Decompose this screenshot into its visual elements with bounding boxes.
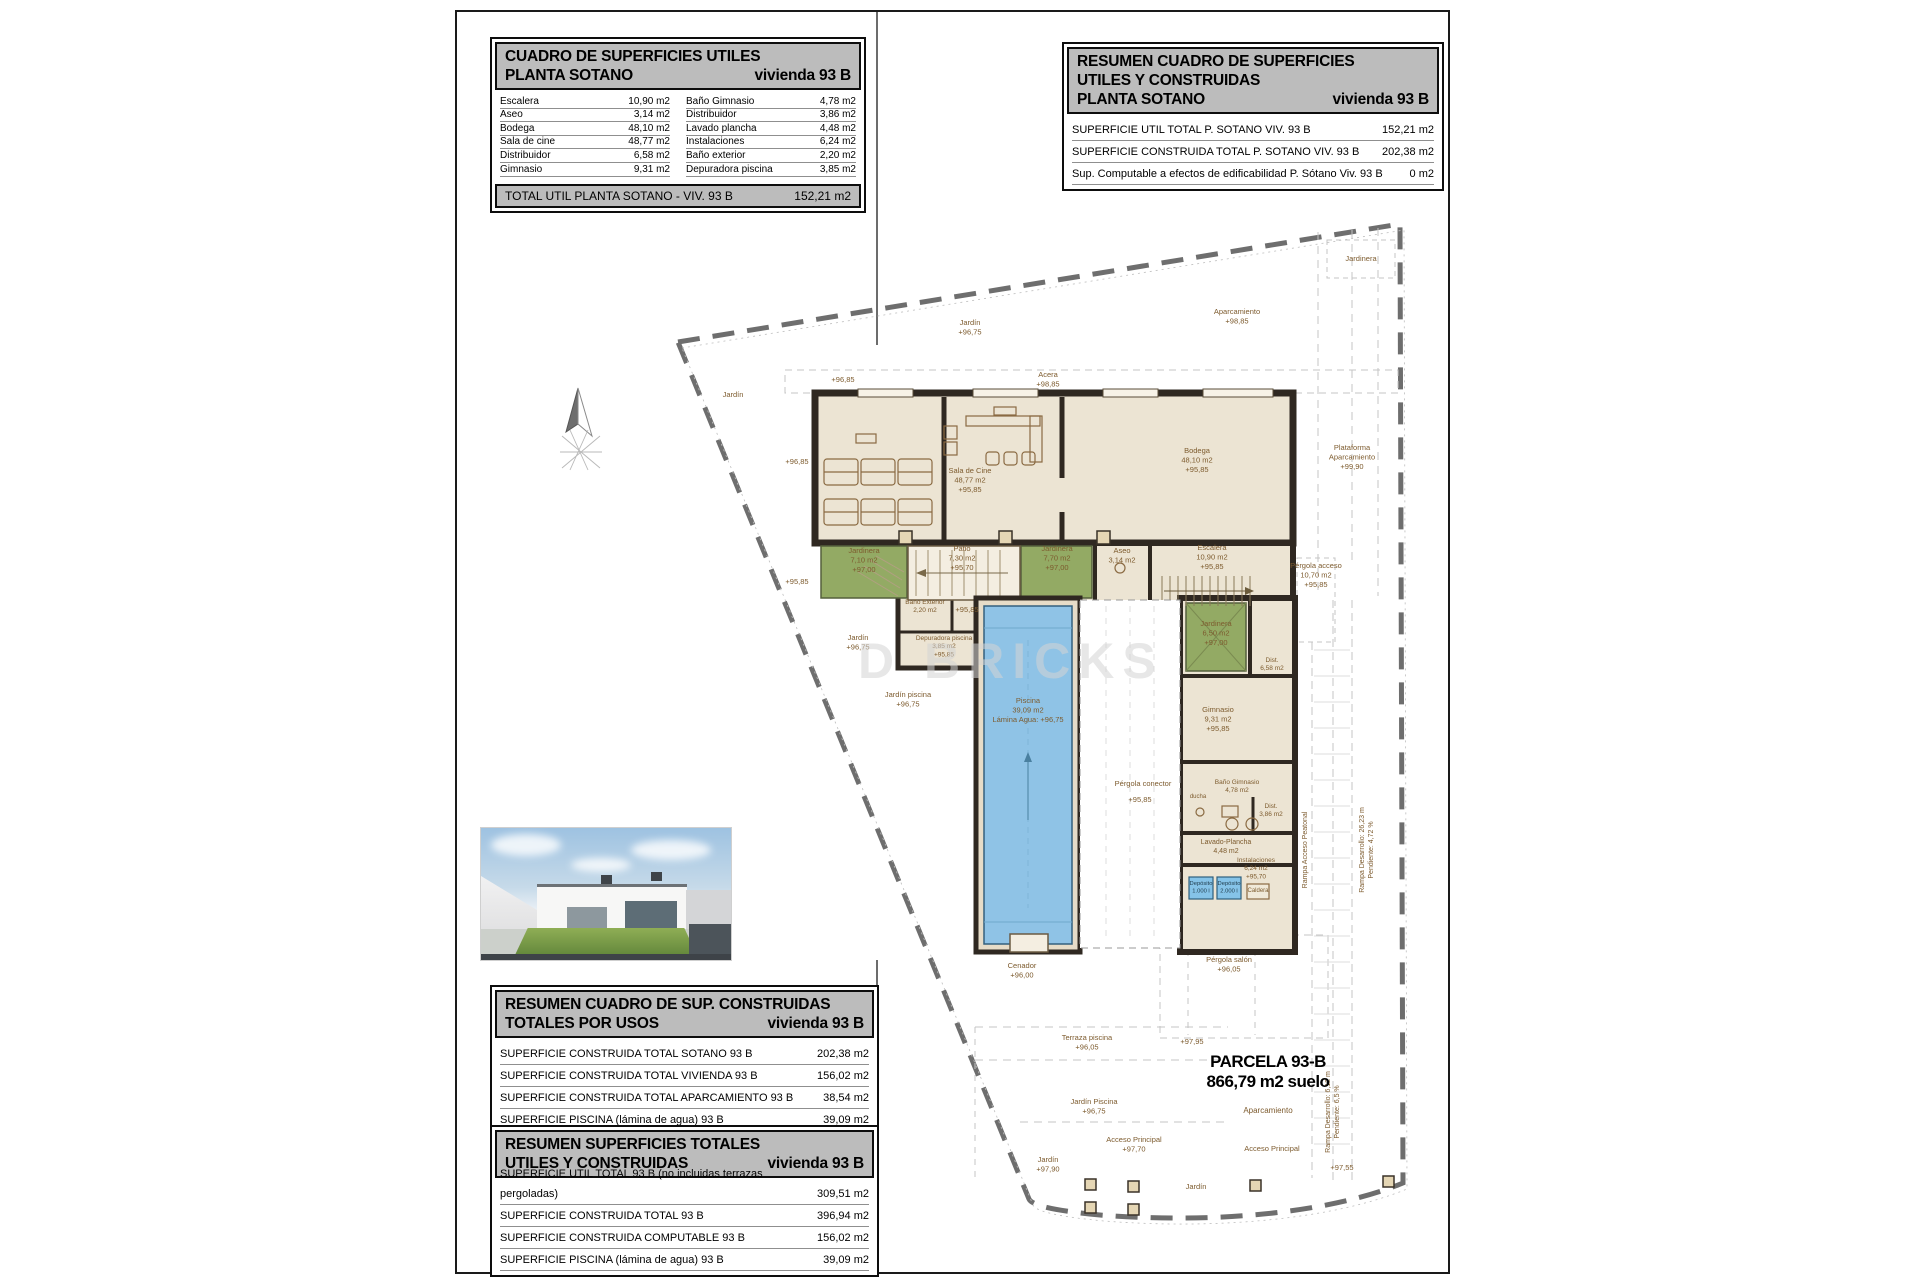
row-value: 152,21 m2 [1376, 120, 1434, 140]
plan-label-line: +95,85 [1200, 562, 1223, 571]
plan-label-line: +96,75 [896, 699, 919, 708]
plan-label-line: +96,85 [831, 375, 854, 384]
plan-label: Rampa Acceso Peatonal [1302, 811, 1309, 888]
plan-label: Acera+98,85 [1036, 370, 1059, 388]
row-value: 309,51 m2 [811, 1184, 869, 1204]
plan-label-line: +96,05 [1075, 1042, 1098, 1051]
table-row: SUPERFICIE PISCINA (lámina de agua) 93 B… [500, 1249, 869, 1271]
watermark-text: D BRICKS [858, 632, 1164, 690]
row-label: Baño Gimnasio [686, 96, 754, 108]
plan-label-line: +95,70 [1246, 873, 1266, 880]
table-rows: SUPERFICIE CONSTRUIDA TOTAL SOTANO 93 B2… [492, 1041, 877, 1135]
table-total-row: TOTAL UTIL PLANTA SOTANO - VIV. 93 B 152… [495, 184, 861, 208]
plan-label-line: Jardinera [1345, 254, 1377, 263]
table-row: Distribuidor3,86 m2 [686, 109, 856, 123]
table-title: RESUMEN CUADRO DE SUP. CONSTRUIDAS [505, 995, 864, 1014]
plan-label: Caldera [1247, 888, 1269, 894]
table-rows: SUPERFICIE UTIL TOTAL P. SOTANO VIV. 93 … [1064, 117, 1442, 189]
plan-label-line: Jardín [723, 390, 744, 399]
rows-left-column: Escalera10,90 m2Aseo3,14 m2Bodega48,10 m… [500, 95, 670, 177]
plan-label-line: Aseo [1113, 546, 1130, 555]
row-value: 396,94 m2 [811, 1206, 869, 1226]
plan-label-line: Instalaciones [1237, 857, 1276, 864]
plan-label-line: Aparcamiento [1214, 307, 1260, 316]
plan-label-line: +98,85 [1225, 316, 1248, 325]
parcela-area: 866,79 m2 suelo [1188, 1072, 1348, 1092]
parcela-name: PARCELA 93-B [1188, 1052, 1348, 1072]
plan-label-line: 4,78 m2 [1225, 787, 1249, 794]
plan-label-line: +95,85 [1185, 465, 1208, 474]
plan-label-line: 10,90 m2 [1196, 552, 1227, 561]
plan-label-line: Gimnasio [1202, 705, 1234, 714]
row-label: Bodega [500, 123, 534, 135]
photo-chimney [651, 872, 662, 881]
plan-label: Aparcamiento+98,85 [1214, 307, 1260, 325]
row-value: 3,14 m2 [628, 109, 670, 121]
row-label: Gimnasio [500, 164, 542, 176]
plan-label-line: 48,10 m2 [1181, 455, 1212, 464]
row-label: SUPERFICIE CONSTRUIDA TOTAL VIVIENDA 93 … [500, 1066, 758, 1086]
row-label: SUPERFICIE CONSTRUIDA TOTAL SOTANO 93 B [500, 1044, 752, 1064]
plan-label-line: +97,00 [852, 565, 875, 574]
table-row: Bodega48,10 m2 [500, 122, 670, 136]
row-value: 6,58 m2 [628, 150, 670, 162]
plan-label-line: Patio [953, 544, 970, 553]
plan-label-line: 4,48 m2 [1213, 848, 1238, 855]
plan-label-line: Pendiente: 4,72 % [1368, 821, 1375, 878]
plan-label-line: 2.000 l [1220, 888, 1237, 894]
plan-label-line: Pérgola conector [1115, 779, 1172, 788]
row-label: Instalaciones [686, 136, 744, 148]
plan-label-line: 10,70 m2 [1300, 570, 1331, 579]
plan-label-line: Cenador [1008, 961, 1037, 970]
table-row: Escalera10,90 m2 [500, 95, 670, 109]
rows-right-column: Baño Gimnasio4,78 m2Distribuidor3,86 m2L… [686, 95, 856, 177]
row-value: 38,54 m2 [817, 1088, 869, 1108]
row-value: 4,78 m2 [814, 96, 856, 108]
table-row: Depuradora piscina3,85 m2 [686, 163, 856, 177]
plan-label: Depósito2.000 l [1218, 881, 1241, 894]
plan-label: +96,85 [785, 457, 808, 466]
plan-label-line: +96,05 [1217, 964, 1240, 973]
plan-label-line: Acera [1038, 370, 1058, 379]
plan-label-line: Plataforma [1334, 443, 1371, 452]
row-value: 2,20 m2 [814, 150, 856, 162]
table-resumen-sotano: RESUMEN CUADRO DE SUPERFICIES UTILES Y C… [1062, 42, 1444, 191]
plan-label-line: Sala de Cine [949, 466, 992, 475]
plan-label: Pérgola salón+96,05 [1206, 955, 1252, 973]
row-value: 9,31 m2 [628, 164, 670, 176]
parcela-label-block: PARCELA 93-B 866,79 m2 suelo Aparcamient… [1188, 1052, 1348, 1115]
table-vivienda: vivienda 93 B [1333, 90, 1429, 109]
plan-label-line: +97,90 [1036, 1164, 1059, 1173]
north-arrow-icon [560, 388, 602, 470]
row-label: Distribuidor [686, 109, 737, 121]
table-row: SUPERFICIE CONSTRUIDA TOTAL SOTANO 93 B2… [500, 1043, 869, 1065]
plan-label-line: Jardín [1186, 1182, 1207, 1191]
table-title2: UTILES Y CONSTRUIDAS [1077, 71, 1429, 90]
plan-label-line: Jardinera [1041, 544, 1073, 553]
row-label: Baño exterior [686, 150, 745, 162]
plan-label-line: 7,70 m2 [1043, 553, 1070, 562]
table-row: SUPERFICIE CONSTRUIDA TOTAL 93 B396,94 m… [500, 1205, 869, 1227]
plan-label: ducha [1190, 794, 1207, 800]
plan-label-line: Rampa Acceso Peatonal [1302, 811, 1309, 888]
plan-label-line: Baño Gimnasio [1215, 779, 1260, 786]
plan-label-line: +96,75 [958, 327, 981, 336]
plan-label-line: 1.000 l [1192, 888, 1209, 894]
row-label: Sup. Computable a efectos de edificabili… [1072, 164, 1383, 184]
table-row: Baño exterior2,20 m2 [686, 149, 856, 163]
plan-label-line: Jardín piscina [885, 690, 932, 699]
row-value: 156,02 m2 [811, 1066, 869, 1086]
row-value: 10,90 m2 [622, 96, 670, 108]
table-row: SUPERFICIE CONSTRUIDA TOTAL APARCAMIENTO… [500, 1087, 869, 1109]
plan-label: Bodega48,10 m2+95,85 [1181, 446, 1212, 474]
row-value: 6,24 m2 [814, 136, 856, 148]
photo-bottom-band [481, 954, 731, 960]
plan-label-line: Pérgola acceso [1290, 561, 1342, 570]
plan-label: Cenador+96,00 [1008, 961, 1037, 979]
plan-label: Jardín+96,75 [958, 318, 981, 336]
plan-label-line: 6,50 m2 [1202, 628, 1229, 637]
table-construidas-por-usos: RESUMEN CUADRO DE SUP. CONSTRUIDAS TOTAL… [490, 985, 879, 1137]
plan-label: Acceso Principal [1244, 1144, 1300, 1153]
row-value: 48,10 m2 [622, 123, 670, 135]
plan-label-line: Jardinera [848, 546, 880, 555]
plan-label: Pérgola conector [1115, 779, 1172, 788]
table-row: Sup. Computable a efectos de edificabili… [1072, 163, 1434, 185]
plan-label-line: 6,24 m2 [1244, 865, 1268, 872]
plan-label-line: Piscina [1016, 696, 1041, 705]
photo-lawn [515, 928, 697, 955]
table-title: RESUMEN CUADRO DE SUPERFICIES [1077, 52, 1429, 71]
plan-label-line: +96,75 [1082, 1106, 1105, 1115]
row-label: SUPERFICIE CONSTRUIDA TOTAL 93 B [500, 1206, 704, 1226]
plan-label-line: Jardín [1038, 1155, 1059, 1164]
row-label: Sala de cine [500, 136, 555, 148]
photo-chimney [601, 875, 612, 884]
table-row: Distribuidor6,58 m2 [500, 149, 670, 163]
row-label: SUPERFICIE CONSTRUIDA TOTAL P. SOTANO VI… [1072, 142, 1359, 162]
table-header: RESUMEN CUADRO DE SUP. CONSTRUIDAS TOTAL… [495, 990, 874, 1038]
table-row: SUPERFICIE UTIL TOTAL 93 B (no incluidas… [500, 1183, 869, 1205]
total-value: 152,21 m2 [794, 189, 851, 203]
plan-label-line: Aparcamiento [1329, 452, 1375, 461]
plan-label-line: Jardín [960, 318, 981, 327]
plan-label-line: +96,00 [1010, 970, 1033, 979]
row-label: SUPERFICIE CONSTRUIDA COMPUTABLE 93 B [500, 1228, 745, 1248]
plan-label: +97,55 [1330, 1163, 1353, 1172]
plan-label-line: +95,85 [785, 577, 808, 586]
plan-label: Jardinera [1345, 254, 1377, 263]
table-row: Sala de cine48,77 m2 [500, 136, 670, 150]
plan-label-line: Depósito [1218, 881, 1241, 887]
plan-label-line: +97,70 [1122, 1144, 1145, 1153]
row-value: 4,48 m2 [814, 123, 856, 135]
plan-label-line: +98,85 [1036, 379, 1059, 388]
plan-label-line: Terraza piscina [1062, 1033, 1113, 1042]
table-row: Gimnasio9,31 m2 [500, 163, 670, 177]
row-label: SUPERFICIE CONSTRUIDA TOTAL APARCAMIENTO… [500, 1088, 793, 1108]
row-value: 39,09 m2 [817, 1250, 869, 1270]
plan-label-line: Escalera [1197, 543, 1227, 552]
row-label: Depuradora piscina [686, 164, 773, 176]
plan-label-line: +95,85 [1304, 580, 1327, 589]
plan-label-line: Lámina Agua: +96,75 [992, 715, 1063, 724]
table-row: SUPERFICIE CONSTRUIDA TOTAL VIVIENDA 93 … [500, 1065, 869, 1087]
plan-label: +95,85 [955, 605, 978, 614]
table-row: SUPERFICIE UTIL TOTAL P. SOTANO VIV. 93 … [1072, 119, 1434, 141]
row-label: Lavado plancha [686, 123, 757, 135]
row-value: 3,86 m2 [814, 109, 856, 121]
plan-label-line: Acceso Principal [1244, 1144, 1300, 1153]
row-value: 156,02 m2 [811, 1228, 869, 1248]
row-label: SUPERFICIE PISCINA (lámina de agua) 93 B [500, 1250, 724, 1270]
plan-label-line: +95,85 [958, 485, 981, 494]
plan-label-line: +97,55 [1330, 1163, 1353, 1172]
plan-label-line: 6,58 m2 [1260, 665, 1284, 672]
house-render-photo [480, 827, 732, 961]
plan-label-line: +95,85 [955, 605, 978, 614]
plan-label: Jardín piscina+96,75 [885, 690, 932, 708]
row-value: 48,77 m2 [622, 136, 670, 148]
plan-label-line: Bodega [1184, 446, 1211, 455]
row-value: 202,38 m2 [811, 1044, 869, 1064]
table-row: Instalaciones6,24 m2 [686, 136, 856, 150]
table-superficies-totales: RESUMEN SUPERFICIES TOTALES UTILES Y CON… [490, 1125, 879, 1277]
table-title: RESUMEN SUPERFICIES TOTALES [505, 1135, 864, 1154]
table-vivienda: vivienda 93 B [768, 1014, 864, 1033]
plan-label-line: +95,70 [950, 563, 973, 572]
table-vivienda: vivienda 93 B [755, 66, 851, 85]
plan-label: PlataformaAparcamiento+99,90 [1329, 443, 1375, 471]
plan-label-line: Dist. [1266, 657, 1279, 664]
plan-label-line: 48,77 m2 [954, 475, 985, 484]
plan-label-line: +97,00 [1204, 638, 1227, 647]
table-row: SUPERFICIE CONSTRUIDA COMPUTABLE 93 B156… [500, 1227, 869, 1249]
cenador-structure [1010, 934, 1048, 952]
plan-label-line: +95,85 [1128, 795, 1151, 804]
plan-label: +95,85 [1128, 795, 1151, 804]
plan-label-line: Lavado-Plancha [1201, 839, 1252, 846]
table-subtitle: PLANTA SOTANO [1077, 90, 1205, 109]
plan-label: Pérgola acceso10,70 m2+95,85 [1290, 561, 1342, 589]
table-header: CUADRO DE SUPERFICIES UTILES PLANTA SOTA… [495, 42, 861, 90]
plan-label: Jardín Piscina+96,75 [1070, 1097, 1118, 1115]
plan-label-line: Jardín Piscina [1070, 1097, 1118, 1106]
plan-label: Escalera10,90 m2+95,85 [1196, 543, 1227, 571]
photo-dark-terrace [689, 924, 731, 955]
plan-label: +96,85 [831, 375, 854, 384]
plan-label-line: Rampa Desarrollo: 26,23 m [1359, 807, 1366, 893]
row-label: Aseo [500, 109, 523, 121]
parcela-sub-label: Aparcamiento [1188, 1106, 1348, 1115]
plan-label-line: 2,20 m2 [913, 607, 937, 614]
plan-label: Gimnasio9,31 m2+95,85 [1202, 705, 1234, 733]
table-row: Baño Gimnasio4,78 m2 [686, 95, 856, 109]
total-label: TOTAL UTIL PLANTA SOTANO - VIV. 93 B [505, 189, 733, 203]
row-value: 3,85 m2 [814, 164, 856, 176]
plan-label-line: +97,95 [1180, 1037, 1203, 1046]
row-value: 0 m2 [1404, 164, 1434, 184]
plan-label-line: Pérgola salón [1206, 955, 1252, 964]
row-label: SUPERFICIE UTIL TOTAL 93 B (no incluidas… [500, 1164, 811, 1204]
plan-label-line: +99,90 [1340, 462, 1363, 471]
row-label: Distribuidor [500, 150, 551, 162]
plan-label: Jardín [723, 390, 744, 399]
plan-label-line: Acceso Principal [1106, 1135, 1162, 1144]
cloud [491, 834, 561, 856]
plan-label-line: 3,14 m2 [1108, 555, 1135, 564]
plan-label: Terraza piscina+96,05 [1062, 1033, 1113, 1051]
plan-label: Jardín+97,90 [1036, 1155, 1059, 1173]
plan-label-line: 7,30 m2 [948, 553, 975, 562]
plan-label: +95,85 [785, 577, 808, 586]
table-subtitle: PLANTA SOTANO [505, 66, 633, 85]
plan-label-line: ducha [1190, 794, 1207, 800]
plan-label-line: Dist. [1265, 803, 1278, 810]
row-label: SUPERFICIE UTIL TOTAL P. SOTANO VIV. 93 … [1072, 120, 1311, 140]
table-cuadro-superficies-utiles: CUADRO DE SUPERFICIES UTILES PLANTA SOTA… [490, 37, 866, 213]
table-title: CUADRO DE SUPERFICIES UTILES [505, 47, 851, 66]
photo-house [537, 884, 687, 934]
plan-label: Acceso Principal+97,70 [1106, 1135, 1162, 1153]
plan-label-line: 39,09 m2 [1012, 705, 1043, 714]
table-row: Aseo3,14 m2 [500, 109, 670, 123]
plan-label-line: +96,85 [785, 457, 808, 466]
table-header: RESUMEN CUADRO DE SUPERFICIES UTILES Y C… [1067, 47, 1439, 114]
plan-label-line: Depósito [1190, 881, 1213, 887]
table-rows: SUPERFICIE UTIL TOTAL 93 B (no incluidas… [492, 1181, 877, 1275]
plan-label: Jardín [1186, 1182, 1207, 1191]
row-value: 202,38 m2 [1376, 142, 1434, 162]
table-subtitle: TOTALES POR USOS [505, 1014, 659, 1033]
plan-label-line: Jardinera [1200, 619, 1232, 628]
plan-label: +97,95 [1180, 1037, 1203, 1046]
plan-label-line: 3,86 m2 [1259, 811, 1283, 818]
plan-label-line: 9,31 m2 [1204, 714, 1231, 723]
plan-label-line: +95,85 [1206, 724, 1229, 733]
row-label: Escalera [500, 96, 539, 108]
cloud [631, 840, 711, 860]
plan-label: Depósito1.000 l [1190, 881, 1213, 894]
plan-label-line: +97,00 [1045, 563, 1068, 572]
plan-label-line: Caldera [1247, 888, 1269, 894]
plan-label-line: Baño Exterior [905, 599, 945, 606]
plan-label: Rampa Desarrollo: 26,23 mPendiente: 4,72… [1359, 807, 1375, 893]
table-row: SUPERFICIE CONSTRUIDA TOTAL P. SOTANO VI… [1072, 141, 1434, 163]
plan-label-line: 7,10 m2 [850, 555, 877, 564]
cloud [571, 858, 631, 872]
table-row: Lavado plancha4,48 m2 [686, 122, 856, 136]
